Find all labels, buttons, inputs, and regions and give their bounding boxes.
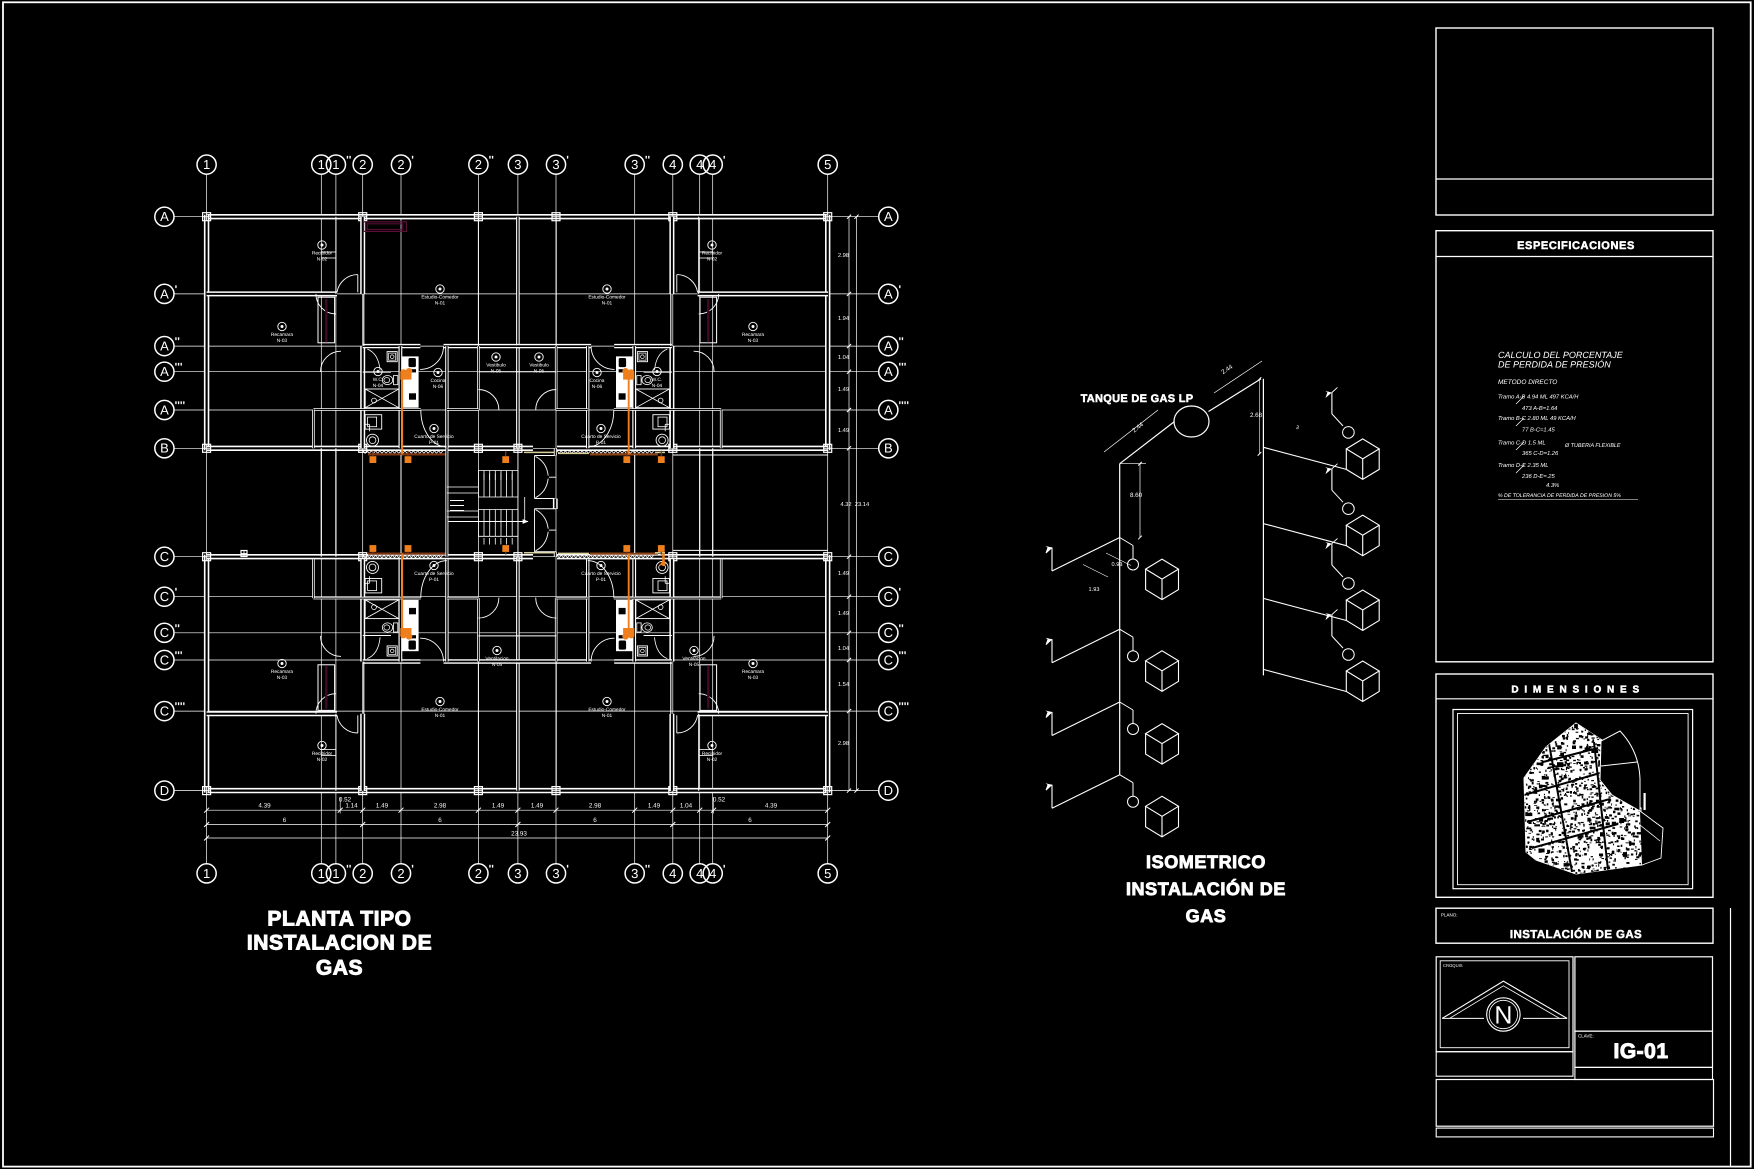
- svg-text:2: 2: [475, 157, 482, 172]
- svg-text:''': ''': [175, 650, 183, 662]
- svg-text:3: 3: [631, 157, 638, 172]
- svg-text:': ': [566, 155, 569, 167]
- svg-text:': ': [175, 587, 178, 599]
- svg-text:5: 5: [824, 866, 831, 881]
- svg-text:C: C: [884, 652, 893, 667]
- svg-text:N-02: N-02: [707, 257, 718, 263]
- svg-text:4: 4: [696, 157, 703, 172]
- svg-text:1.49: 1.49: [492, 803, 505, 810]
- svg-text:5: 5: [824, 157, 831, 172]
- svg-text:4: 4: [696, 866, 703, 881]
- svg-text:1: 1: [332, 157, 339, 172]
- svg-text:INSTALACION DE: INSTALACION DE: [247, 932, 432, 955]
- svg-text:3: 3: [514, 157, 521, 172]
- svg-text:6: 6: [283, 817, 287, 824]
- svg-text:N-04: N-04: [373, 383, 384, 389]
- svg-text:'': '': [899, 336, 905, 348]
- svg-text:A: A: [160, 339, 169, 354]
- svg-text:Ventilacion: Ventilacion: [485, 656, 509, 662]
- svg-text:': ': [411, 155, 414, 167]
- svg-text:N-05: N-05: [534, 369, 545, 375]
- svg-text:4: 4: [709, 866, 716, 881]
- svg-text:PLANO:: PLANO:: [1441, 913, 1458, 918]
- svg-text:0.93: 0.93: [1112, 562, 1123, 568]
- svg-text:Recamara: Recamara: [271, 669, 293, 675]
- svg-text:W.C.: W.C.: [652, 377, 662, 383]
- svg-text:A: A: [884, 402, 893, 417]
- svg-text:C: C: [884, 589, 893, 604]
- svg-text:''': ''': [899, 650, 907, 662]
- svg-text:B: B: [884, 441, 893, 456]
- svg-text:D I M E N S I O N E S: D I M E N S I O N E S: [1511, 685, 1640, 696]
- svg-text:Cocina: Cocina: [590, 378, 605, 384]
- svg-text:473 A-B=1.64: 473 A-B=1.64: [1522, 405, 1557, 412]
- svg-text:Estudio-Comedor: Estudio-Comedor: [421, 707, 459, 713]
- svg-text:B: B: [160, 441, 169, 456]
- svg-text:23.93: 23.93: [511, 830, 527, 837]
- svg-text:2.68: 2.68: [1250, 412, 1263, 419]
- svg-text:1.49: 1.49: [838, 427, 849, 434]
- svg-text:D: D: [884, 783, 893, 798]
- svg-text:'': '': [346, 863, 352, 875]
- svg-text:N-05: N-05: [492, 662, 503, 668]
- svg-text:3: 3: [631, 866, 638, 881]
- svg-text:4: 4: [709, 157, 716, 172]
- svg-text:N-01: N-01: [435, 301, 446, 307]
- svg-text:4.32: 4.32: [840, 501, 851, 508]
- svg-text:Recibidor: Recibidor: [312, 751, 333, 757]
- svg-text:365 C-D=1.26: 365 C-D=1.26: [1522, 450, 1559, 457]
- svg-text:D: D: [160, 783, 169, 798]
- svg-text:N-04: N-04: [652, 383, 663, 389]
- svg-text:N-03: N-03: [277, 338, 288, 344]
- svg-text:P-01: P-01: [596, 440, 606, 446]
- svg-text:A: A: [160, 402, 169, 417]
- svg-text:4: 4: [669, 866, 676, 881]
- svg-text:C: C: [884, 704, 893, 719]
- svg-text:0.52: 0.52: [339, 797, 352, 804]
- svg-text:1.54: 1.54: [838, 682, 850, 688]
- svg-text:N-06: N-06: [592, 384, 603, 390]
- svg-text:1.49: 1.49: [838, 386, 849, 393]
- svg-text:Cuarto de Servicio: Cuarto de Servicio: [581, 571, 621, 577]
- svg-text:': ': [566, 863, 569, 875]
- svg-text:ESPECIFICACIONES: ESPECIFICACIONES: [1517, 240, 1635, 252]
- svg-text:C: C: [160, 589, 169, 604]
- svg-text:N-01: N-01: [435, 713, 446, 719]
- svg-text:': ': [899, 284, 902, 296]
- svg-text:ISOMETRICO: ISOMETRICO: [1146, 852, 1266, 872]
- svg-text:1.49: 1.49: [838, 570, 849, 577]
- svg-text:Vestibulo: Vestibulo: [529, 363, 549, 369]
- svg-text:Ø TUBERIA FLEXIBLE: Ø TUBERIA FLEXIBLE: [1564, 443, 1621, 449]
- svg-text:N-02: N-02: [707, 757, 718, 763]
- svg-text:Tramo A-B 4.94 ML 497 KCA/: Tramo A-B 4.94 ML 497 KCA/H: [1498, 394, 1579, 401]
- svg-text:4.3%: 4.3%: [1546, 482, 1559, 489]
- svg-text:1.49: 1.49: [376, 803, 389, 810]
- svg-text:1.04: 1.04: [838, 645, 850, 652]
- svg-text:2.98: 2.98: [838, 740, 849, 747]
- svg-text:PLANTA TIPO: PLANTA TIPO: [267, 908, 411, 931]
- svg-text:23.14: 23.14: [855, 501, 870, 508]
- svg-text:1.49: 1.49: [838, 610, 849, 617]
- svg-text:236 D-E=.25: 236 D-E=.25: [1521, 473, 1555, 480]
- svg-text:C: C: [160, 704, 169, 719]
- svg-text:Recamara: Recamara: [742, 669, 764, 675]
- svg-text:2: 2: [397, 866, 404, 881]
- svg-text:A: A: [884, 339, 893, 354]
- svg-text:2.98: 2.98: [589, 803, 602, 810]
- svg-text:Tramo B-C 2.80 ML 49 KCA/H: Tramo B-C 2.80 ML 49 KCA/H: [1498, 415, 1577, 422]
- svg-text:IG-01: IG-01: [1613, 1040, 1668, 1063]
- svg-text:P-01: P-01: [429, 577, 439, 583]
- svg-text:'''': '''': [175, 400, 186, 412]
- svg-text:''': ''': [175, 362, 183, 374]
- svg-text:Ventilacion: Ventilacion: [682, 656, 706, 662]
- svg-text:C: C: [884, 549, 893, 564]
- svg-text:3: 3: [552, 866, 559, 881]
- svg-text:'': '': [346, 155, 352, 167]
- svg-text:A: A: [160, 286, 169, 301]
- svg-text:1: 1: [318, 866, 325, 881]
- svg-text:% DE TOLERANCIA DE PERDIDA DE: % DE TOLERANCIA DE PERDIDA DE PRESION 5%: [1498, 493, 1621, 499]
- svg-text:GAS: GAS: [316, 957, 363, 980]
- svg-text:Estudio-Comedor: Estudio-Comedor: [421, 295, 459, 301]
- svg-text:C: C: [884, 625, 893, 640]
- svg-text:CLAVE:: CLAVE:: [1578, 1034, 1594, 1039]
- svg-text:1.14: 1.14: [345, 803, 358, 810]
- svg-text:'''': '''': [899, 400, 910, 412]
- svg-text:8.60: 8.60: [1130, 492, 1143, 499]
- svg-text:'': '': [645, 863, 651, 875]
- svg-text:N-03: N-03: [748, 338, 759, 344]
- svg-text:'''': '''': [899, 701, 910, 713]
- svg-text:DE PERDIDA DE PRESIÓN: DE PERDIDA DE PRESIÓN: [1498, 360, 1611, 370]
- svg-text:P-01: P-01: [596, 577, 606, 583]
- svg-text:Recibidor: Recibidor: [702, 251, 723, 257]
- svg-text:C: C: [160, 652, 169, 667]
- svg-text:N-05: N-05: [491, 369, 502, 375]
- svg-text:2: 2: [475, 866, 482, 881]
- svg-text:Tramo C-D 1.5 ML: Tramo C-D 1.5 ML: [1498, 440, 1546, 447]
- svg-text:2: 2: [359, 866, 366, 881]
- svg-text:INSTALACIÓN DE GAS: INSTALACIÓN DE GAS: [1510, 927, 1642, 941]
- svg-text:2: 2: [359, 157, 366, 172]
- svg-text:N-02: N-02: [317, 757, 328, 763]
- svg-text:A: A: [884, 364, 893, 379]
- svg-text:Vestibulo: Vestibulo: [486, 363, 506, 369]
- svg-text:3: 3: [514, 866, 521, 881]
- svg-text:1: 1: [332, 866, 339, 881]
- svg-text:3: 3: [552, 157, 559, 172]
- svg-text:1.04: 1.04: [680, 803, 693, 810]
- svg-text:6: 6: [748, 817, 752, 824]
- svg-text:C: C: [160, 625, 169, 640]
- svg-text:'': '': [645, 155, 651, 167]
- svg-text:Cuarto de Servicio: Cuarto de Servicio: [581, 434, 621, 440]
- svg-text:1: 1: [203, 157, 210, 172]
- svg-text:N-03: N-03: [277, 675, 288, 681]
- svg-text:CALCULO DEL PORCENTAJE: CALCULO DEL PORCENTAJE: [1498, 350, 1624, 360]
- svg-text:METODO DIRECTO: METODO DIRECTO: [1498, 379, 1557, 386]
- svg-text:2.98: 2.98: [838, 252, 849, 259]
- svg-text:A: A: [884, 286, 893, 301]
- svg-text:N-01: N-01: [602, 301, 613, 307]
- svg-text:Estudio-Comedor: Estudio-Comedor: [588, 295, 626, 301]
- svg-text:TANQUE DE GAS LP: TANQUE DE GAS LP: [1081, 393, 1194, 405]
- svg-text:Cuarto de Servicio: Cuarto de Servicio: [414, 571, 454, 577]
- svg-text:Cuarto de Servicio: Cuarto de Servicio: [414, 434, 454, 440]
- svg-text:': ': [723, 863, 726, 875]
- svg-text:N-06: N-06: [433, 384, 444, 390]
- svg-text:A: A: [160, 209, 169, 224]
- svg-text:N-02: N-02: [317, 257, 328, 263]
- svg-text:2.98: 2.98: [434, 803, 447, 810]
- svg-text:77 B-C=1.45: 77 B-C=1.45: [1522, 427, 1555, 434]
- svg-text:': ': [175, 284, 178, 296]
- svg-text:'': '': [489, 863, 495, 875]
- svg-text:': ': [411, 863, 414, 875]
- svg-text:Recibidor: Recibidor: [312, 251, 333, 257]
- svg-text:Recamara: Recamara: [742, 332, 764, 338]
- svg-text:CROQUIS: CROQUIS: [1443, 963, 1463, 968]
- svg-text:4: 4: [669, 157, 676, 172]
- svg-text:4.39: 4.39: [258, 803, 271, 810]
- svg-text:4.39: 4.39: [765, 803, 778, 810]
- svg-text:P-01: P-01: [429, 440, 439, 446]
- svg-text:A: A: [160, 364, 169, 379]
- svg-text:N-03: N-03: [748, 675, 759, 681]
- svg-text:0.52: 0.52: [713, 797, 726, 804]
- svg-text:'': '': [175, 623, 181, 635]
- svg-text:N-01: N-01: [602, 713, 613, 719]
- svg-text:1: 1: [318, 157, 325, 172]
- svg-text:'': '': [175, 336, 181, 348]
- svg-text:Recamara: Recamara: [271, 332, 293, 338]
- svg-text:6: 6: [593, 817, 597, 824]
- svg-text:Recibidor: Recibidor: [702, 751, 723, 757]
- svg-text:1.49: 1.49: [531, 803, 544, 810]
- svg-text:6: 6: [438, 817, 442, 824]
- svg-text:A: A: [884, 209, 893, 224]
- svg-text:1: 1: [203, 866, 210, 881]
- svg-text:'''': '''': [175, 701, 186, 713]
- svg-text:1.04: 1.04: [838, 354, 850, 361]
- svg-text:''': ''': [899, 362, 907, 374]
- svg-text:1.94: 1.94: [838, 315, 850, 322]
- svg-text:1.93: 1.93: [1089, 587, 1100, 593]
- svg-text:N-05: N-05: [689, 662, 700, 668]
- svg-text:1.49: 1.49: [648, 803, 661, 810]
- svg-text:N: N: [1494, 1002, 1512, 1030]
- svg-text:INSTALACIÓN DE: INSTALACIÓN DE: [1126, 879, 1286, 899]
- svg-text:'': '': [489, 155, 495, 167]
- svg-text:2: 2: [397, 157, 404, 172]
- svg-text:Estudio-Comedor: Estudio-Comedor: [588, 707, 626, 713]
- svg-text:': ': [899, 587, 902, 599]
- svg-text:': ': [723, 155, 726, 167]
- svg-text:'': '': [899, 623, 905, 635]
- svg-text:C: C: [160, 549, 169, 564]
- svg-text:Cocina: Cocina: [431, 378, 446, 384]
- svg-text:GAS: GAS: [1186, 906, 1227, 926]
- svg-text:W.C.: W.C.: [373, 377, 383, 383]
